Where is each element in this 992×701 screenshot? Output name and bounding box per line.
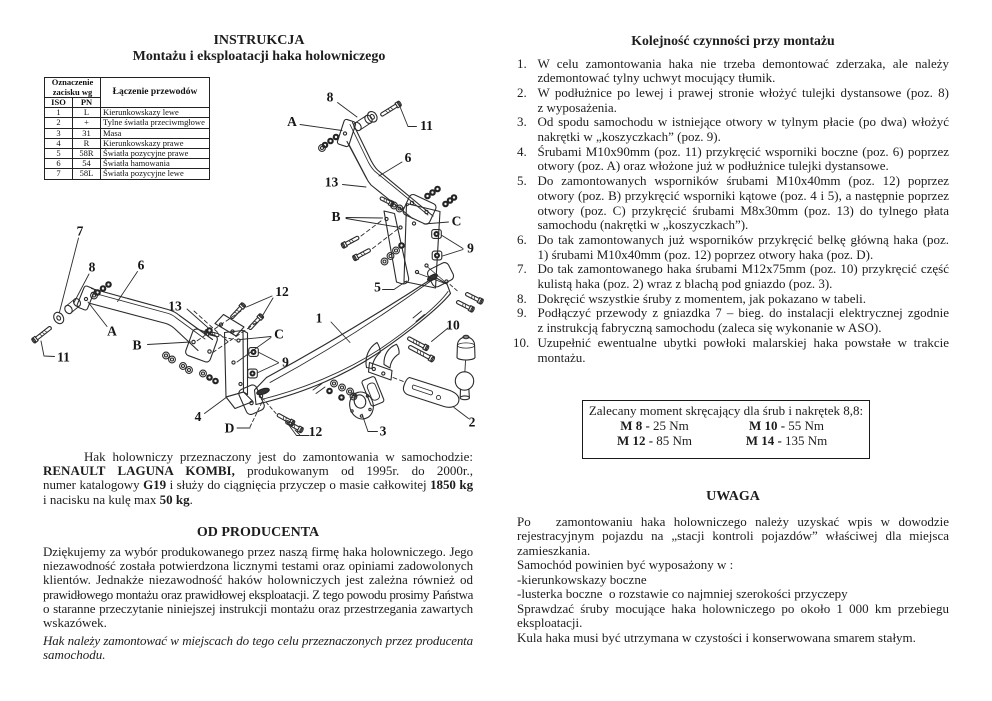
svg-text:C: C xyxy=(452,214,462,229)
svg-text:7: 7 xyxy=(77,224,84,239)
svg-text:D: D xyxy=(225,421,235,436)
svg-text:8: 8 xyxy=(89,260,96,275)
svg-text:A: A xyxy=(287,114,297,129)
svg-text:10: 10 xyxy=(446,318,460,333)
svg-text:B: B xyxy=(132,338,141,353)
svg-text:11: 11 xyxy=(57,350,70,365)
svg-text:9: 9 xyxy=(282,355,289,370)
svg-text:3: 3 xyxy=(380,424,387,439)
svg-text:13: 13 xyxy=(168,299,182,314)
svg-text:1: 1 xyxy=(316,311,323,326)
svg-text:6: 6 xyxy=(138,258,145,273)
svg-text:6: 6 xyxy=(405,150,412,165)
svg-text:9: 9 xyxy=(467,241,474,256)
svg-text:C: C xyxy=(274,327,284,342)
svg-text:5: 5 xyxy=(374,280,381,295)
svg-text:13: 13 xyxy=(325,175,339,190)
svg-text:2: 2 xyxy=(469,415,476,430)
svg-text:12: 12 xyxy=(309,424,323,439)
svg-text:12: 12 xyxy=(275,284,289,299)
svg-text:B: B xyxy=(331,209,340,224)
svg-text:11: 11 xyxy=(420,118,433,133)
svg-text:8: 8 xyxy=(327,90,334,105)
svg-text:4: 4 xyxy=(195,409,202,424)
svg-text:A: A xyxy=(107,324,117,339)
